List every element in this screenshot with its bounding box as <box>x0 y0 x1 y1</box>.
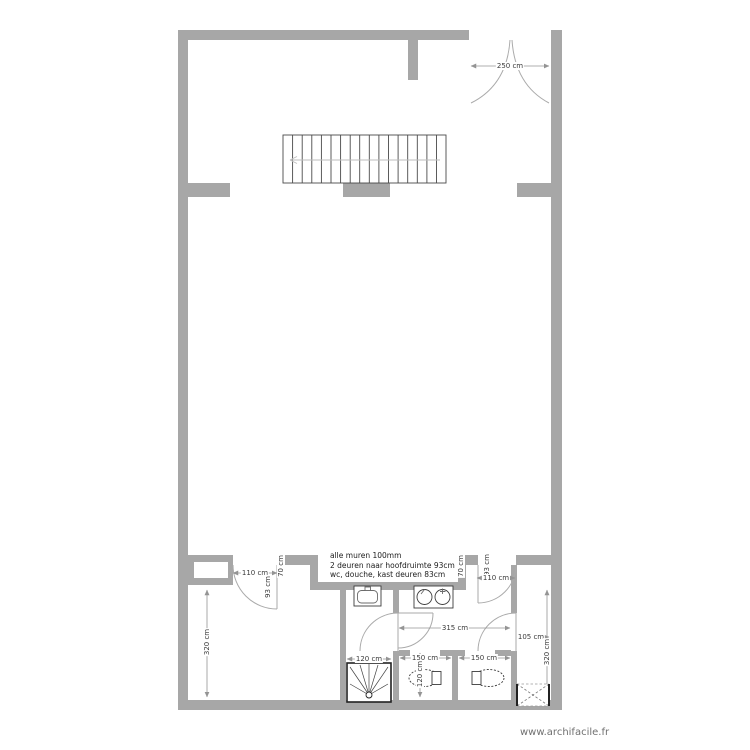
door-hall-icon <box>398 613 433 648</box>
door-closet-icon <box>478 613 516 651</box>
dim-label-wall-seg-left: 70 cm <box>277 554 285 578</box>
stair-landing-block <box>343 183 390 197</box>
floor-plan-drawing <box>0 0 750 750</box>
wall-bathroom-left <box>340 590 346 700</box>
wall-closet-left-top <box>511 565 517 613</box>
crossed-box-icon <box>517 684 549 706</box>
toilet-right-icon <box>472 670 504 687</box>
entry-double-door-icon <box>471 40 549 103</box>
dim-label-left-depth: 320 cm <box>203 628 211 656</box>
dim-label-hall: 315 cm <box>441 624 469 632</box>
wall-bathroom-right-top <box>393 590 399 613</box>
dim-label-right-door: 110 cm <box>482 574 510 582</box>
wall-wc-top2 <box>440 650 465 656</box>
dim-label-entry-door: 250 cm <box>496 62 524 70</box>
wall-bottomsection-right2 <box>516 555 551 565</box>
door-bathroom-icon <box>360 613 398 651</box>
shower-tray-icon <box>347 663 391 702</box>
washbasin-icon <box>354 586 381 606</box>
wall-stub-right <box>517 183 551 197</box>
plan-note-line3: wc, douche, kast deuren 83cm <box>330 570 480 580</box>
wall-stub-left <box>188 183 230 197</box>
plan-note-line2: 2 deuren naar hoofdruimte 93cm <box>330 561 480 571</box>
dim-label-wc-right: 150 cm <box>470 654 498 662</box>
wall-bathroom-right-bottom <box>393 651 399 700</box>
plan-note-line1: alle muren 100mm <box>330 551 480 561</box>
wall-left <box>178 30 188 710</box>
dim-label-wc-depth: 120 cm <box>416 660 424 688</box>
toilet-left-icon <box>409 670 441 687</box>
floor-plan-canvas: 250 cm 110 cm 93 cm 70 cm 70 cm 93 cm 11… <box>0 0 750 750</box>
outer-walls <box>178 30 562 710</box>
dim-label-right-depth: 320 cm <box>543 638 551 666</box>
wall-right <box>551 30 562 710</box>
double-washbasin-icon <box>414 586 453 608</box>
dim-label-left-door-leaf: 93 cm <box>264 575 272 599</box>
wall-top <box>178 30 469 40</box>
wall-wc-divider <box>452 651 458 700</box>
archifacile-watermark: www.archifacile.fr <box>520 727 609 738</box>
dim-label-closet: 105 cm <box>517 633 545 641</box>
wall-wc-top1 <box>399 650 410 656</box>
plan-notes: alle muren 100mm 2 deuren naar hoofdruim… <box>330 551 480 580</box>
window-recess <box>194 562 228 578</box>
dim-label-shower: 120 cm <box>355 655 383 663</box>
wall-stub-top <box>408 40 418 80</box>
staircase-icon <box>283 135 446 183</box>
